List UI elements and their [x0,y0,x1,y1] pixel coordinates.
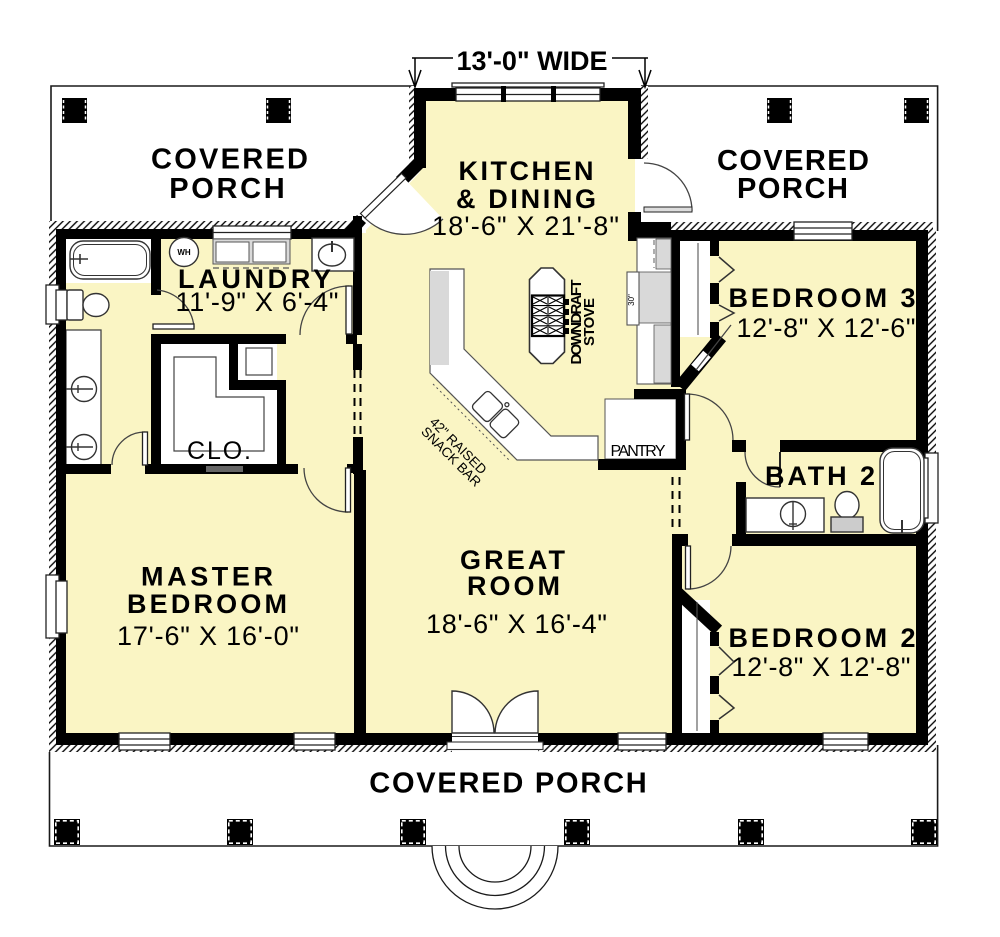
svg-text:STOVE: STOVE [581,298,598,346]
svg-text:CLO.: CLO. [187,437,251,465]
svg-text:WH: WH [177,248,191,257]
svg-text:17'-6" X 16'-0": 17'-6" X 16'-0" [117,621,299,651]
svg-text:COVERED PORCH: COVERED PORCH [369,768,647,800]
svg-text:PORCH: PORCH [169,173,285,205]
svg-text:12'-8" X 12'-6": 12'-8" X 12'-6" [737,313,916,343]
svg-text:18'-6" X 21'-8": 18'-6" X 21'-8" [432,211,619,241]
svg-text:PANTRY: PANTRY [611,443,666,460]
svg-text:PORCH: PORCH [737,173,848,205]
svg-text:11'-9" X 6'-4": 11'-9" X 6'-4" [176,287,339,317]
svg-text:MASTER: MASTER [141,562,273,592]
svg-text:ROOM: ROOM [467,571,560,601]
svg-text:COVERED: COVERED [151,144,308,176]
svg-text:12'-8" X 12'-8": 12'-8" X 12'-8" [732,652,911,682]
svg-text:13'-0" WIDE: 13'-0" WIDE [457,46,608,76]
svg-text:30": 30" [627,294,636,306]
svg-text:18'-6" X 16'-4": 18'-6" X 16'-4" [426,609,607,639]
